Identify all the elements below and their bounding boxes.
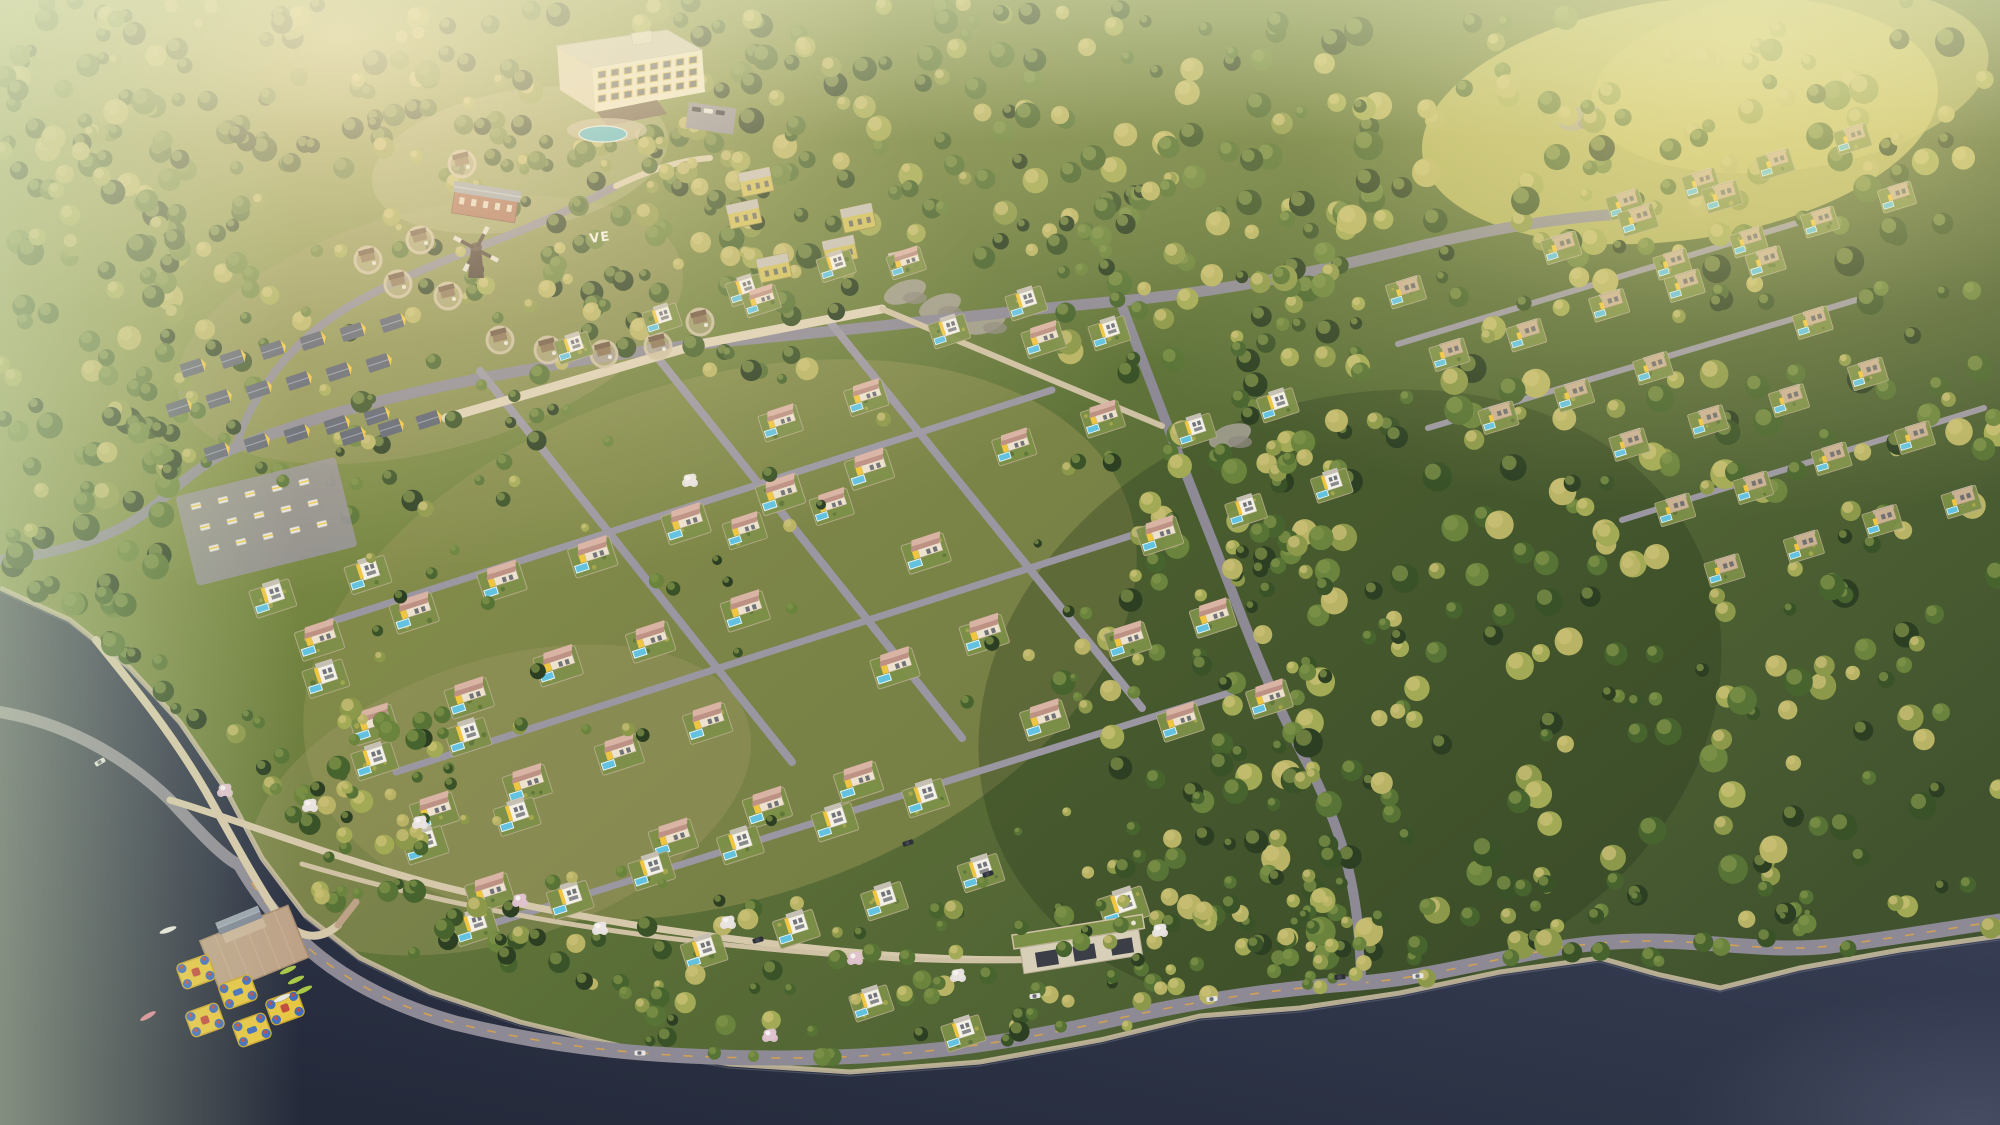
aerial-render: VE — [0, 0, 2000, 1125]
atmosphere-haze — [0, 0, 2000, 1125]
scene-canvas: VE — [0, 0, 2000, 1125]
